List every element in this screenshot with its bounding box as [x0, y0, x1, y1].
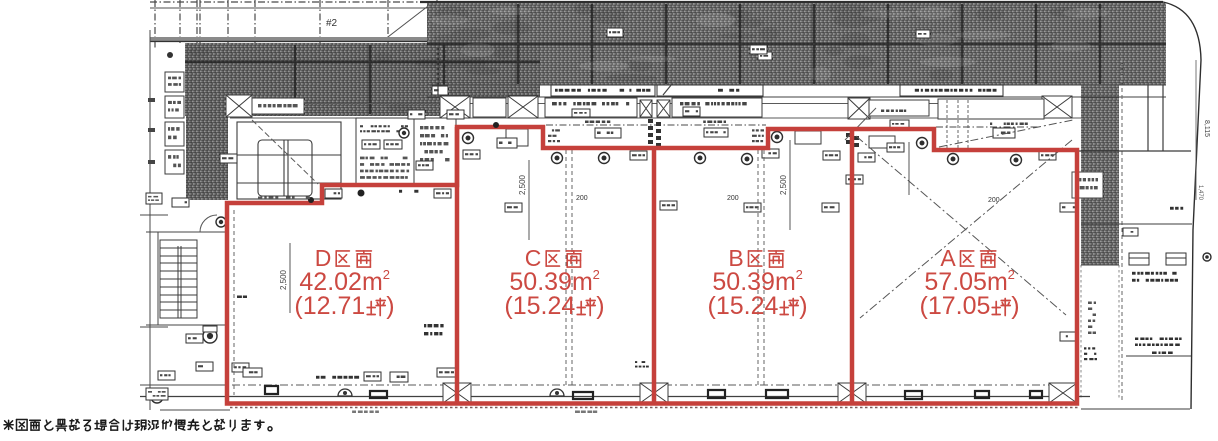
svg-text:(17.05: (17.05 [920, 292, 991, 320]
svg-text:2: 2 [796, 267, 803, 282]
svg-text:): ) [386, 292, 394, 320]
svg-text:200: 200 [576, 195, 588, 202]
svg-text:2,500: 2,500 [279, 269, 288, 290]
svg-text:(15.24: (15.24 [708, 292, 779, 320]
svg-text:8,115: 8,115 [1203, 120, 1210, 137]
svg-text:): ) [1011, 292, 1019, 320]
svg-text:): ) [799, 292, 807, 320]
svg-text:): ) [596, 292, 604, 320]
svg-text:2,500: 2,500 [779, 174, 788, 195]
svg-text:2: 2 [593, 267, 600, 282]
svg-text:200: 200 [988, 197, 1000, 204]
svg-text:#2: #2 [326, 18, 338, 29]
svg-text:(12.71: (12.71 [294, 292, 365, 320]
svg-text:2: 2 [383, 267, 390, 282]
svg-text:1,470: 1,470 [1197, 185, 1203, 201]
svg-text:2,500: 2,500 [518, 174, 527, 195]
svg-text:200: 200 [727, 195, 739, 202]
svg-text:(15.24: (15.24 [504, 292, 575, 320]
svg-text:2: 2 [1008, 267, 1015, 282]
